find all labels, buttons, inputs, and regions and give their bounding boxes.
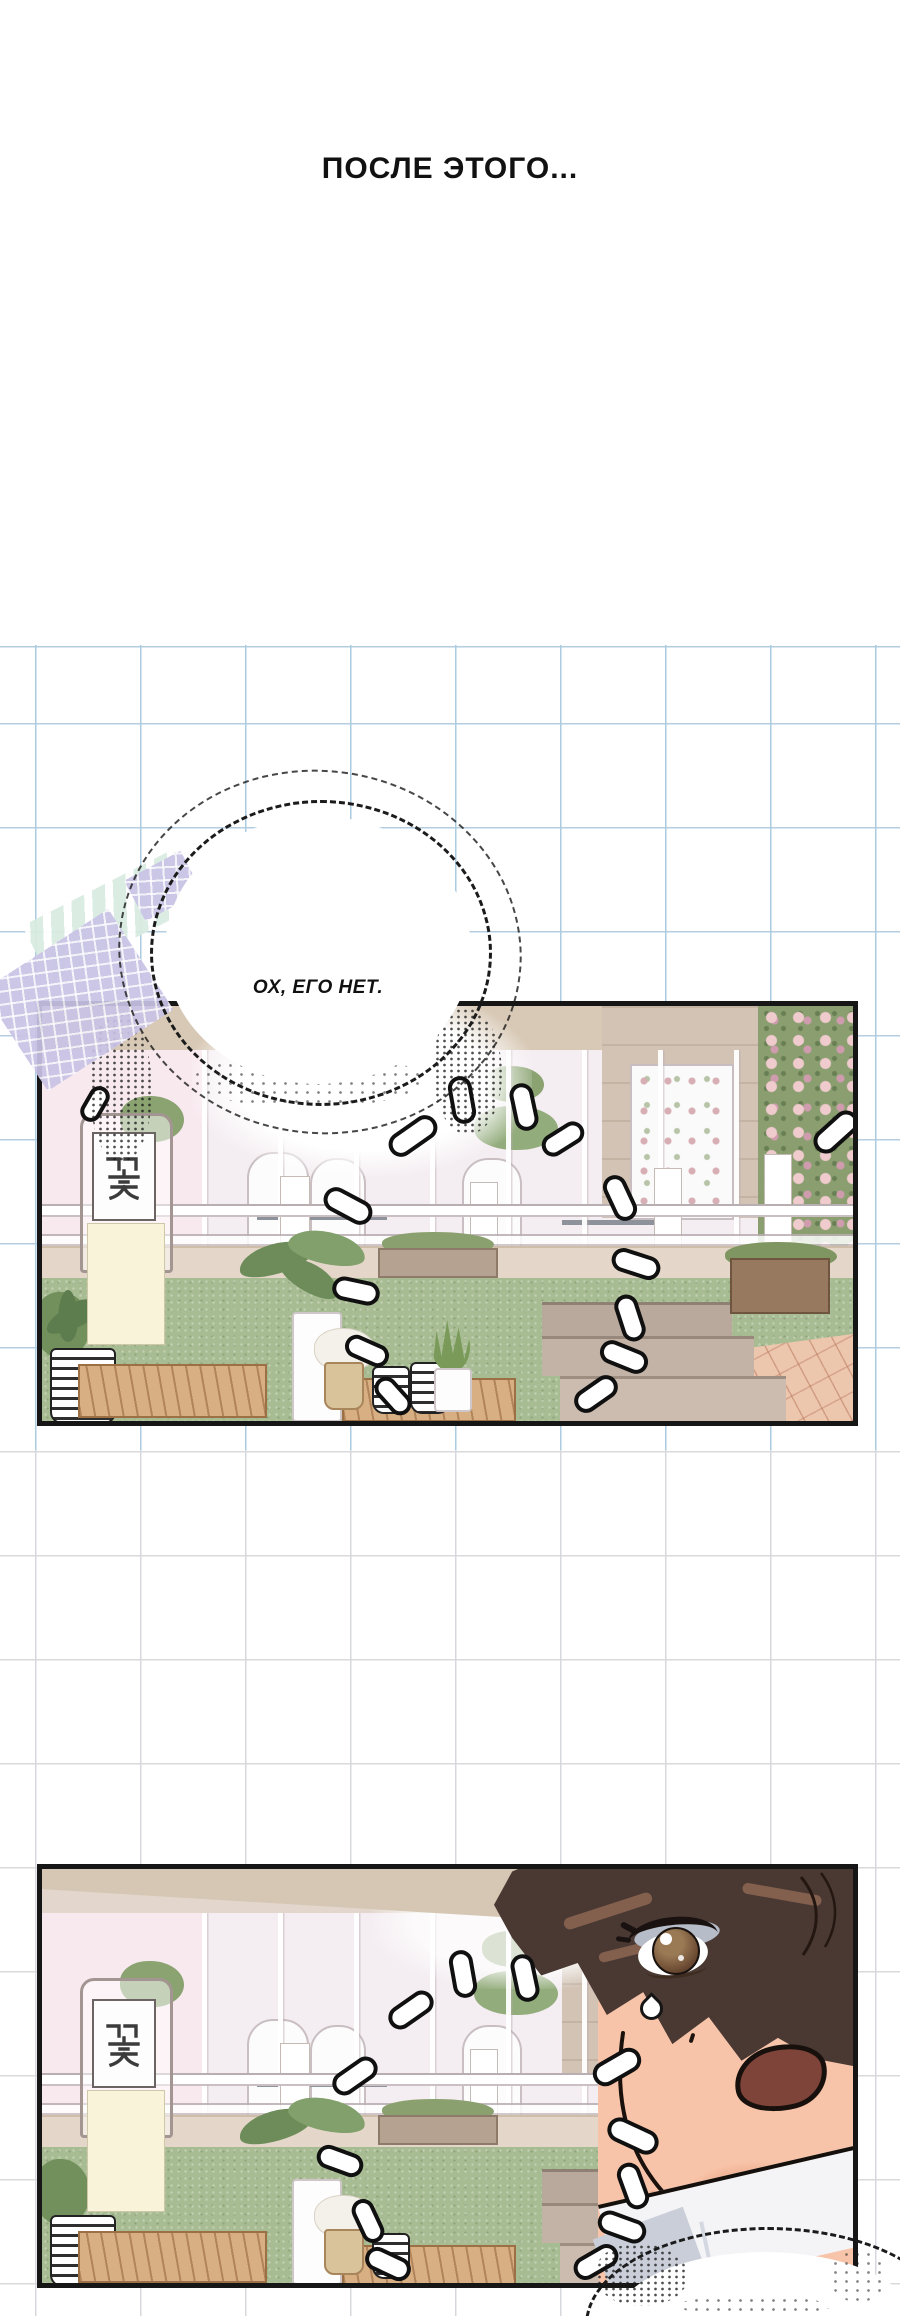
- speech-text: ОХ, ЕГО НЕТ.: [253, 977, 383, 999]
- wood-plant-stand: [78, 1364, 267, 1418]
- webtoon-page: ПОСЛЕ ЭТОГО...: [0, 0, 900, 2316]
- basket-pot: [324, 1362, 364, 1410]
- stipple-spray: [680, 2296, 830, 2316]
- planter-box: [730, 1258, 830, 1314]
- steps-step: [542, 1336, 754, 1376]
- panel2-scene: [42, 1869, 853, 2283]
- comic-panel-2: [37, 1864, 858, 2288]
- burst-bubble: [165, 816, 471, 1084]
- character-boy: [42, 1869, 853, 2283]
- stipple-spray: [596, 2244, 688, 2306]
- planter-box: [378, 1248, 498, 1278]
- white-pot: [434, 1368, 472, 1412]
- flower-sign-base: [87, 1223, 165, 1345]
- stipple-spray: [830, 2250, 886, 2302]
- caption-text: ПОСЛЕ ЭТОГО...: [0, 152, 900, 186]
